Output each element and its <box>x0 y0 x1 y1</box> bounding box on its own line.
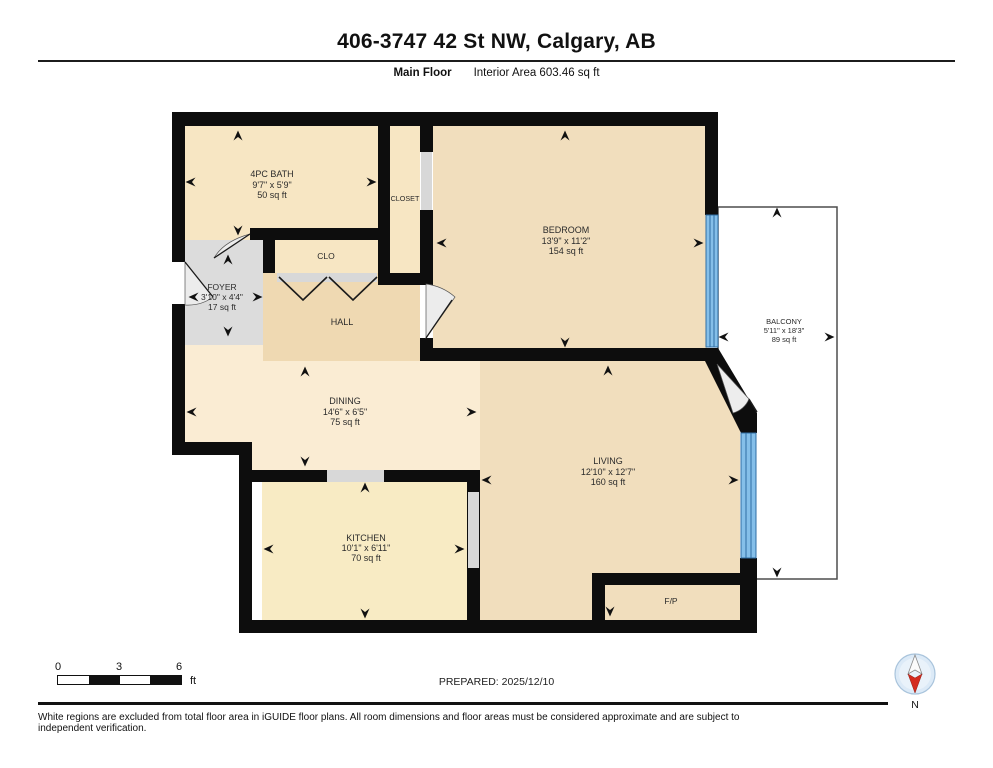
floorplan-page: 406-3747 42 St NW, Calgary, AB Main Floo… <box>0 0 993 768</box>
bedroom-dims: 13'9" x 11'2" <box>542 236 591 246</box>
scale-tick-0: 0 <box>55 661 61 673</box>
dining-label: DINING <box>329 396 361 406</box>
room-fills <box>185 126 740 620</box>
footer-divider <box>38 702 888 705</box>
balcony-area: 89 sq ft <box>772 335 798 344</box>
kitchen-area: 70 sq ft <box>351 553 381 563</box>
living-dims: 12'10" x 12'7" <box>581 467 635 477</box>
floorplan-drawing: 4PC BATH 9'7" x 5'9" 50 sq ft CLOSET CLO… <box>0 0 993 768</box>
foyer-label: FOYER <box>207 282 236 292</box>
kitchen-label: KITCHEN <box>346 533 386 543</box>
bedroom-label: BEDROOM <box>543 225 590 235</box>
scale-ticks: 0 3 6 <box>57 661 197 674</box>
prepared-date: PREPARED: 2025/12/10 <box>0 676 993 688</box>
living-area: 160 sq ft <box>591 477 626 487</box>
bedroom-area: 154 sq ft <box>549 246 584 256</box>
bedroom-window <box>706 215 718 347</box>
compass-icon <box>892 651 938 697</box>
dining-area: 75 sq ft <box>330 417 360 427</box>
living-label: LIVING <box>593 456 623 466</box>
balcony-dims: 5'11" x 18'3" <box>764 326 805 335</box>
bath-dims: 9'7" x 5'9" <box>252 180 291 190</box>
kitchen-dims: 10'1" x 6'11" <box>342 543 391 553</box>
bath-area: 50 sq ft <box>257 190 287 200</box>
clo-label: CLO <box>317 251 335 261</box>
living-window <box>741 433 756 558</box>
disclaimer-text: White regions are excluded from total fl… <box>38 712 768 734</box>
foyer-area: 17 sq ft <box>208 302 237 312</box>
fireplace-label: F/P <box>664 596 678 606</box>
balcony-label: BALCONY <box>766 317 802 326</box>
dining-dims: 14'6" x 6'5" <box>323 407 367 417</box>
closet-label: CLOSET <box>391 194 420 203</box>
hall-label: HALL <box>331 317 354 327</box>
compass-north-label: N <box>892 699 938 711</box>
scale-tick-3: 3 <box>116 661 122 673</box>
compass: N <box>892 651 938 711</box>
foyer-dims: 3'10" x 4'4" <box>201 292 243 302</box>
bath-label: 4PC BATH <box>250 169 293 179</box>
scale-tick-6: 6 <box>176 661 182 673</box>
